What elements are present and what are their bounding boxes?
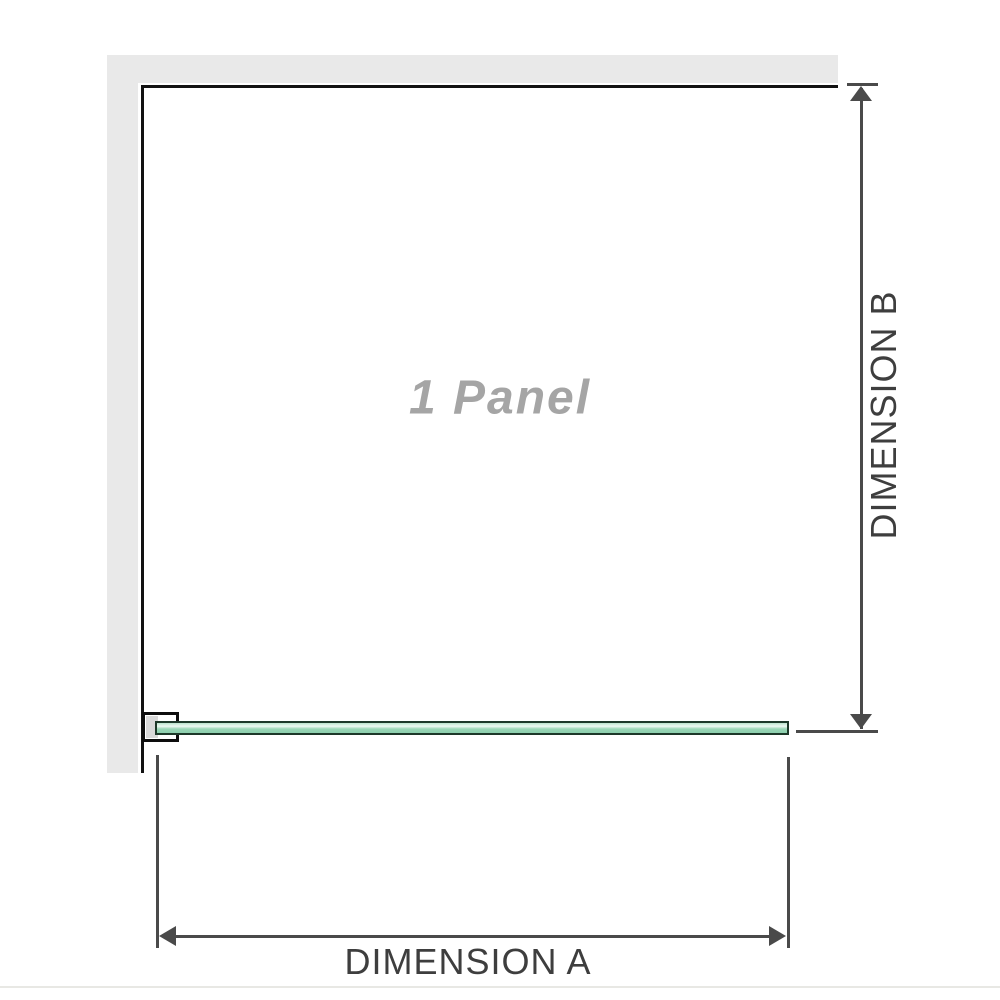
panel-outline-left — [141, 85, 144, 773]
dimension-b-label: DIMENSION B — [863, 290, 905, 539]
dimension-a-extension-left — [156, 755, 159, 948]
dimension-a-line — [170, 935, 772, 938]
panel-count-label: 1 Panel — [409, 371, 591, 426]
wall-left — [107, 55, 138, 773]
dimension-a-extension-right — [787, 757, 790, 948]
dimension-a-label: DIMENSION A — [344, 941, 591, 983]
panel-dimension-diagram: 1 Panel DIMENSION B DIMENSION A — [0, 0, 1000, 1000]
dimension-b-tick-bottom — [796, 730, 878, 733]
arrow-down-icon — [850, 714, 872, 729]
bottom-divider — [0, 986, 1000, 988]
arrow-right-icon — [769, 926, 786, 946]
arrow-left-icon — [159, 926, 176, 946]
panel-outline-top — [141, 85, 838, 88]
glass-panel — [155, 721, 789, 735]
wall-top — [107, 55, 838, 83]
arrow-up-icon — [850, 86, 872, 101]
